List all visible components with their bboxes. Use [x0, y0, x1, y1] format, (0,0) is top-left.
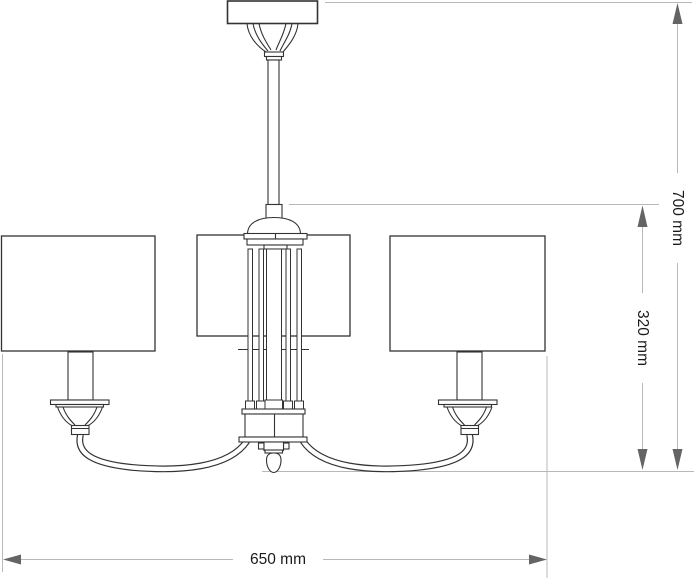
overall-height-dimension-label: 700 mm [668, 173, 686, 263]
cluster-rod-feet [246, 400, 304, 409]
ceiling-bell [247, 24, 298, 53]
center-tube [267, 249, 282, 401]
right-trumpet-collar [461, 426, 479, 435]
suspension-rod [268, 60, 279, 205]
chandelier [2, 1, 546, 473]
left-trumpet-plate-inner [56, 405, 104, 408]
chandelier-line-drawing [0, 0, 700, 582]
right-candle-sleeve [457, 352, 482, 400]
column-collar [264, 245, 287, 249]
right-arm [303, 435, 470, 469]
arrow-up-700 [673, 3, 683, 24]
rod-sleeve [266, 205, 282, 219]
hub-flange-bottom [239, 437, 307, 442]
arrow-down-320 [638, 449, 648, 470]
left-trumpet-bell [58, 407, 103, 426]
left-arm [80, 435, 247, 469]
right-shade [390, 236, 545, 351]
finial [259, 442, 290, 473]
arrow-right [529, 555, 547, 565]
arrow-left [3, 555, 21, 565]
central-flange-lower [247, 239, 303, 245]
right-trumpet-plate [439, 400, 498, 405]
left-shade [2, 236, 156, 351]
left-candle-sleeve [68, 352, 93, 400]
ceiling-plate [228, 1, 318, 24]
body-height-dimension-label: 320 mm [633, 293, 651, 383]
technical-drawing-canvas: 650 mm 700 mm 320 mm [0, 0, 700, 582]
central-dome [248, 218, 301, 234]
arrow-up-320 [638, 206, 648, 228]
finial-drop [267, 453, 282, 473]
right-trumpet-bell [447, 407, 492, 426]
ceiling-bell-collar [265, 52, 284, 57]
arrow-down-700 [673, 449, 683, 470]
left-trumpet-collar [72, 426, 90, 435]
hub-flange-top [242, 409, 305, 414]
width-dimension-label: 650 mm [233, 551, 323, 569]
left-trumpet-plate [51, 400, 110, 405]
right-trumpet-plate-inner [444, 405, 492, 408]
